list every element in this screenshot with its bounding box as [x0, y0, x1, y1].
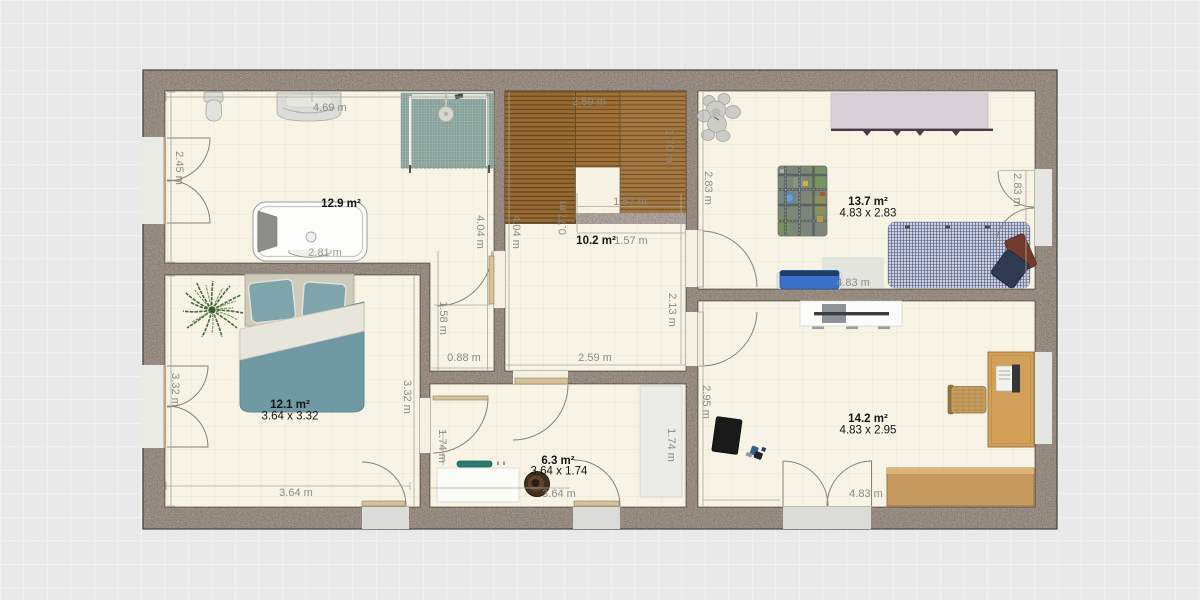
svg-text:3.32 m: 3.32 m — [401, 380, 413, 414]
svg-text:2.45 m: 2.45 m — [173, 151, 185, 185]
svg-text:2.81 m: 2.81 m — [308, 247, 342, 259]
svg-text:3.64 m: 3.64 m — [279, 487, 313, 499]
svg-text:4.83 m: 4.83 m — [849, 488, 883, 500]
svg-text:3.32 m: 3.32 m — [169, 373, 181, 407]
svg-text:2.59 m: 2.59 m — [572, 96, 606, 108]
svg-text:4.83 m: 4.83 m — [836, 277, 870, 289]
svg-text:4.83 x 2.95: 4.83 x 2.95 — [840, 425, 897, 437]
svg-text:1.57 m: 1.57 m — [614, 235, 648, 247]
svg-text:3.64 x 3.32: 3.64 x 3.32 — [262, 411, 319, 423]
svg-text:4.04 m: 4.04 m — [474, 215, 486, 249]
svg-text:4.83 x 2.83: 4.83 x 2.83 — [840, 208, 897, 220]
svg-text:12.1 m²: 12.1 m² — [270, 399, 310, 411]
svg-text:1.58 m: 1.58 m — [437, 301, 449, 335]
svg-text:1.74 m: 1.74 m — [665, 428, 677, 462]
svg-text:13.7 m²: 13.7 m² — [848, 196, 888, 208]
svg-text:12.9 m²: 12.9 m² — [321, 198, 361, 210]
svg-text:2.13 m: 2.13 m — [666, 293, 678, 327]
svg-text:4.04 m: 4.04 m — [510, 215, 522, 249]
svg-text:10.2 m²: 10.2 m² — [576, 235, 616, 247]
svg-text:2.59 m: 2.59 m — [578, 352, 612, 364]
svg-text:0.88 m: 0.88 m — [447, 352, 481, 364]
svg-text:1.70 m: 1.70 m — [663, 129, 675, 163]
svg-text:3.64 m: 3.64 m — [542, 488, 576, 500]
svg-text:1.74 m: 1.74 m — [436, 429, 448, 463]
svg-text:4.69 m: 4.69 m — [313, 102, 347, 114]
svg-text:2.83 m: 2.83 m — [1011, 173, 1023, 207]
svg-text:3.64 x 1.74: 3.64 x 1.74 — [531, 466, 589, 478]
svg-text:1.57 m: 1.57 m — [613, 196, 647, 208]
svg-text:0.77 m: 0.77 m — [557, 201, 569, 235]
svg-text:2.83 m: 2.83 m — [702, 171, 714, 205]
svg-text:14.2 m²: 14.2 m² — [848, 413, 888, 425]
svg-text:2.95 m: 2.95 m — [700, 385, 712, 419]
